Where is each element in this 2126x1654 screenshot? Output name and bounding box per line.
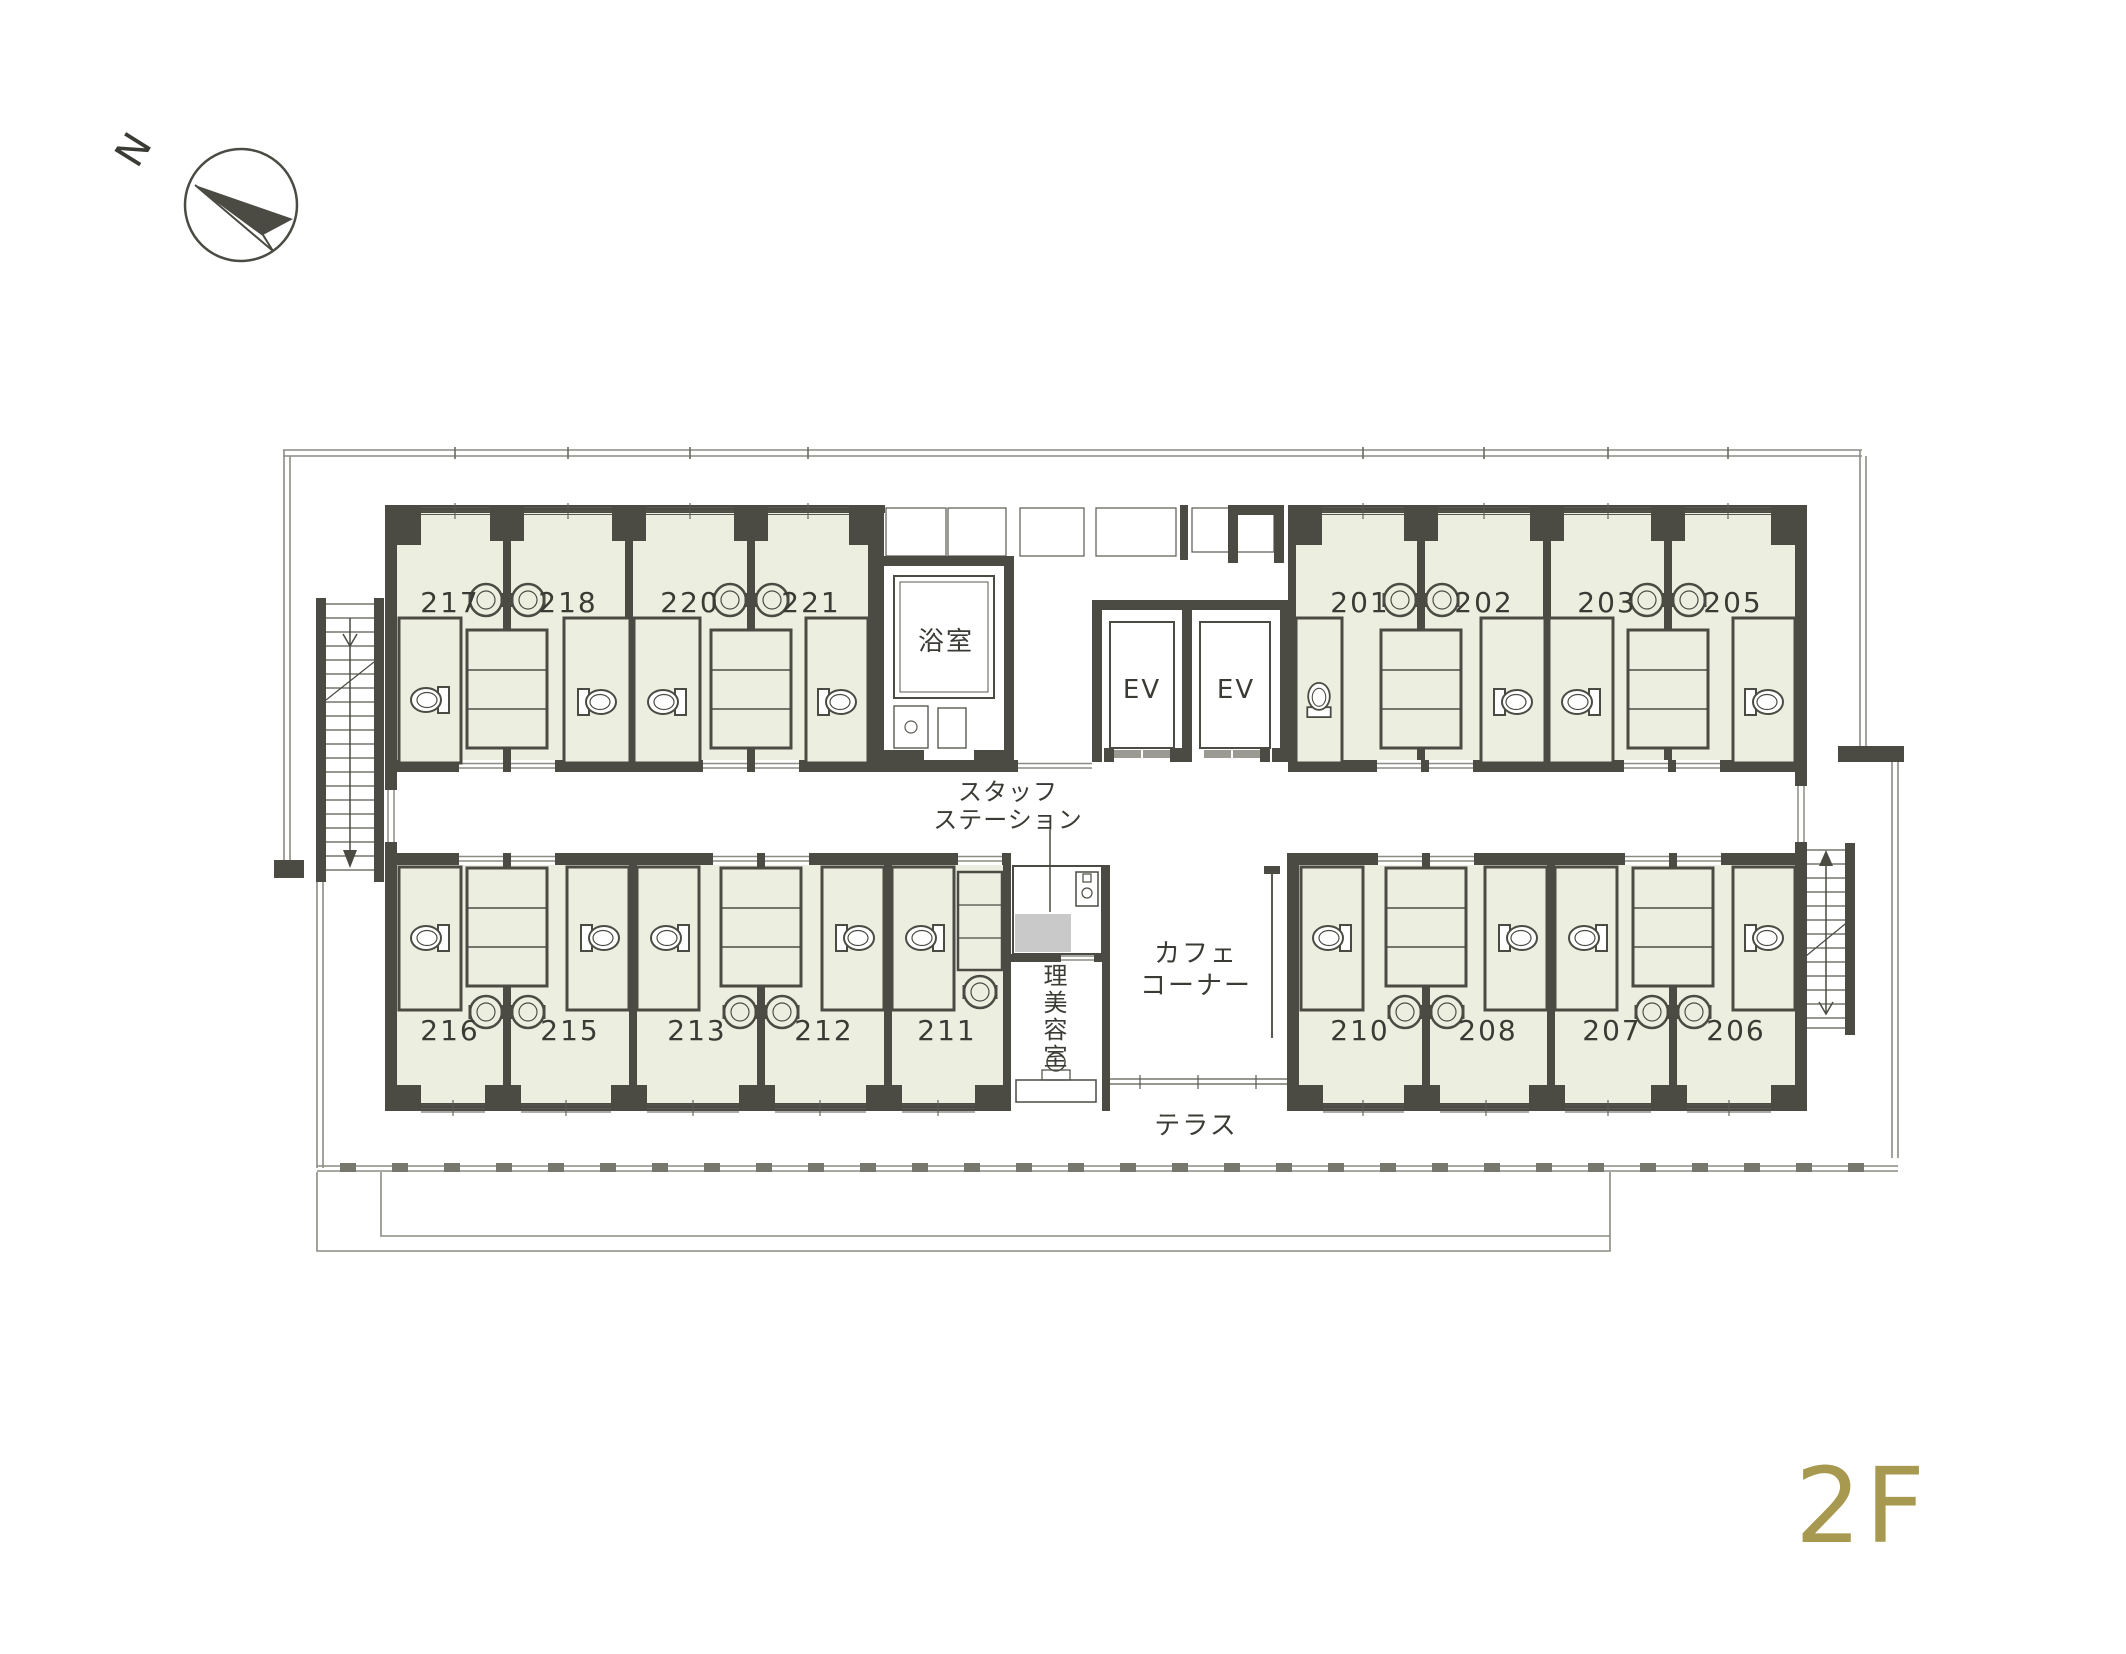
room-221-label: 221 <box>781 586 840 619</box>
room-216-label: 216 <box>420 1014 479 1047</box>
room-217-label: 217 <box>420 586 479 619</box>
room-212-label: 212 <box>794 1014 853 1047</box>
room-218-label: 218 <box>538 586 597 619</box>
right-balcony-cap <box>1838 746 1904 762</box>
ev1-label: EV <box>1123 675 1161 705</box>
room-220-label: 220 <box>660 586 719 619</box>
room-213-label: 213 <box>667 1014 726 1047</box>
bath-room <box>884 556 1014 760</box>
room-206-label: 206 <box>1706 1014 1765 1047</box>
room-210-label: 210 <box>1330 1014 1389 1047</box>
room-203-label: 203 <box>1577 586 1636 619</box>
floor-plan-page: N 217 218 220 221 201 202 203 205 216 21… <box>0 0 2126 1654</box>
left-balcony-cap <box>274 860 304 878</box>
floor-plan-2f: N 217 218 220 221 201 202 203 205 216 21… <box>0 0 2126 1654</box>
staff-station-label-line1: スタッフ <box>958 778 1058 806</box>
cafe-label-line1: カフェ <box>1154 939 1238 969</box>
terrace-label: テラス <box>1154 1111 1237 1141</box>
stairs-left <box>316 598 384 882</box>
salon-label: 理美容室 <box>1044 962 1069 1071</box>
bath-label: 浴室 <box>918 627 974 657</box>
cafe-label-line2: コーナー <box>1140 971 1252 1001</box>
room-205-label: 205 <box>1703 586 1762 619</box>
furniture-bottom-left <box>399 867 1002 1028</box>
compass: N <box>107 125 297 261</box>
corridor-end-walls <box>385 772 1807 853</box>
elevator-block <box>1092 600 1290 762</box>
room-202-label: 202 <box>1454 586 1513 619</box>
room-211-label: 211 <box>917 1014 976 1047</box>
floor-label: 2F <box>1795 1445 1929 1567</box>
staff-station-label-line2: ステーション <box>933 806 1083 834</box>
staff-station <box>1013 830 1102 954</box>
room-201-label: 201 <box>1330 586 1389 619</box>
ev2-label: EV <box>1217 675 1255 705</box>
compass-north-label: N <box>107 125 162 175</box>
room-215-label: 215 <box>540 1014 599 1047</box>
room-207-label: 207 <box>1582 1014 1641 1047</box>
room-208-label: 208 <box>1458 1014 1517 1047</box>
stairs-right <box>1806 843 1855 1035</box>
